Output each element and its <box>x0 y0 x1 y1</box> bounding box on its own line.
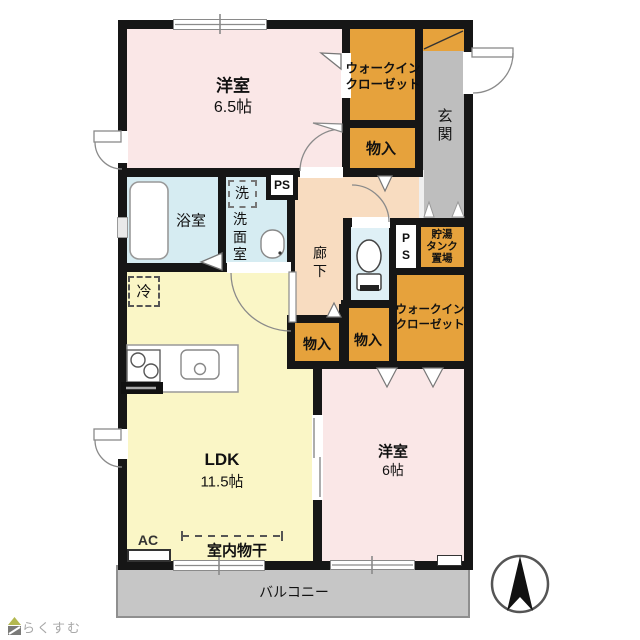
door-swing <box>300 123 342 171</box>
bedroom-main-size: 6.5帖 <box>214 93 252 117</box>
washer-label: 洗 <box>235 183 249 203</box>
floor-plan: 洋室 6.5帖 ウォークイン クローゼット 物入 玄関 浴室 洗 洗面室 廊下 … <box>0 0 640 640</box>
kitchen-counter <box>121 345 238 394</box>
door-swing <box>94 429 122 467</box>
balcony-label: バルコニー <box>259 582 329 602</box>
washroom-door-swing <box>231 272 296 331</box>
logo-text: らくすむ <box>22 618 82 637</box>
storage-door-marker <box>377 368 397 387</box>
sliding-door-marks <box>314 418 320 497</box>
entrance-door-swing <box>472 48 513 93</box>
toilet-fixture <box>357 240 381 291</box>
wic-right-label-1: ウォークイン <box>396 301 465 317</box>
shoe-cabinet-diagonal <box>424 31 463 49</box>
storage-top-label: 物入 <box>366 138 396 159</box>
fridge-label: 冷 <box>136 281 151 302</box>
storage-door-marker <box>327 303 341 317</box>
closet-door-marker <box>423 368 443 387</box>
storage-door-marker <box>378 176 392 191</box>
entrance-label: 玄関 <box>437 108 454 144</box>
indoor-drying-label: 室内物干 <box>207 540 267 561</box>
step-marker <box>452 202 464 217</box>
ac-label: AC <box>138 532 158 548</box>
logo-icon <box>8 617 21 635</box>
tank-label-3: 置場 <box>432 251 453 266</box>
ps-mid-p: P <box>402 231 410 245</box>
compass-north <box>492 556 548 612</box>
corridor-label: 廊下 <box>312 244 328 280</box>
washbasin <box>261 230 284 258</box>
toilet-door-swing <box>352 185 389 222</box>
storage-right-label: 物入 <box>354 330 382 350</box>
washroom-label: 洗面室 <box>232 211 248 264</box>
ldk-size: 11.5帖 <box>200 471 243 492</box>
bedroom-second-size: 6帖 <box>382 460 404 480</box>
door-swing <box>94 131 122 169</box>
wic-top-label-2: クローゼット <box>345 74 420 93</box>
step-marker <box>424 202 434 217</box>
closet-door-marker <box>321 53 341 69</box>
bath-door-marker <box>201 253 222 270</box>
ps-mid-s: S <box>402 248 410 262</box>
bedroom-second-name: 洋室 <box>378 441 408 462</box>
wic-right-label-2: クローゼット <box>396 316 465 332</box>
plan-graphics <box>0 0 640 640</box>
ps-upper-label: PS <box>274 178 290 192</box>
ldk-name: LDK <box>205 450 240 470</box>
storage-left-label: 物入 <box>303 334 331 354</box>
bathroom-label: 浴室 <box>176 210 206 231</box>
bathtub <box>130 182 168 259</box>
